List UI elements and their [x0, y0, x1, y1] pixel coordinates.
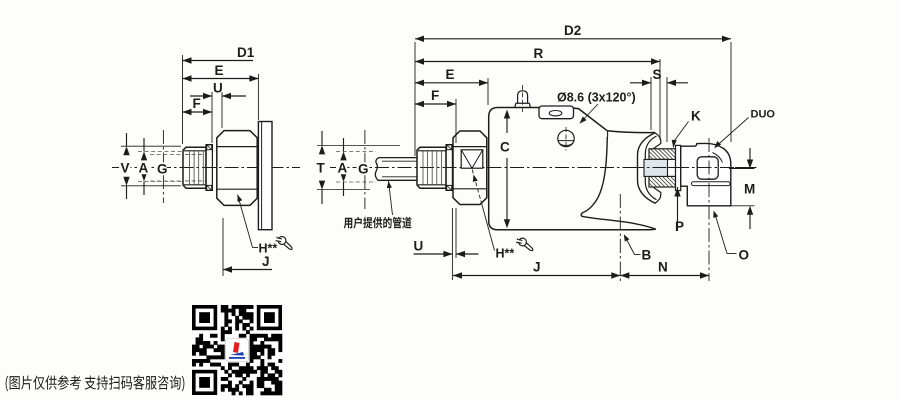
svg-text:E: E: [215, 63, 224, 78]
svg-text:H**: H**: [259, 242, 278, 256]
svg-text:A: A: [139, 161, 149, 176]
svg-text:G: G: [157, 162, 168, 177]
svg-text:P: P: [675, 219, 684, 234]
svg-text:U: U: [414, 239, 424, 254]
svg-text:C: C: [500, 140, 510, 155]
svg-text:V: V: [121, 161, 130, 176]
svg-text:D2: D2: [564, 23, 581, 38]
svg-text:G: G: [358, 162, 369, 177]
svg-text:U: U: [213, 81, 223, 96]
svg-text:F: F: [193, 96, 201, 111]
svg-text:N: N: [658, 260, 668, 275]
svg-text:M: M: [744, 182, 755, 197]
svg-text:K: K: [691, 109, 701, 124]
svg-text:Ø8.6 (3x120°): Ø8.6 (3x120°): [557, 91, 636, 105]
svg-text:D1: D1: [237, 45, 255, 60]
svg-text:T: T: [317, 161, 326, 176]
svg-text:B: B: [642, 248, 652, 263]
svg-text:H**: H**: [496, 247, 515, 261]
svg-text:R: R: [534, 46, 544, 61]
svg-text:J: J: [533, 260, 541, 275]
svg-text:F: F: [431, 88, 439, 103]
svg-text:S: S: [653, 67, 662, 82]
svg-text:O: O: [739, 248, 750, 263]
svg-text:J: J: [262, 254, 270, 269]
svg-text:DUO: DUO: [751, 109, 776, 121]
svg-text:A: A: [338, 161, 348, 176]
svg-text:E: E: [446, 67, 455, 82]
